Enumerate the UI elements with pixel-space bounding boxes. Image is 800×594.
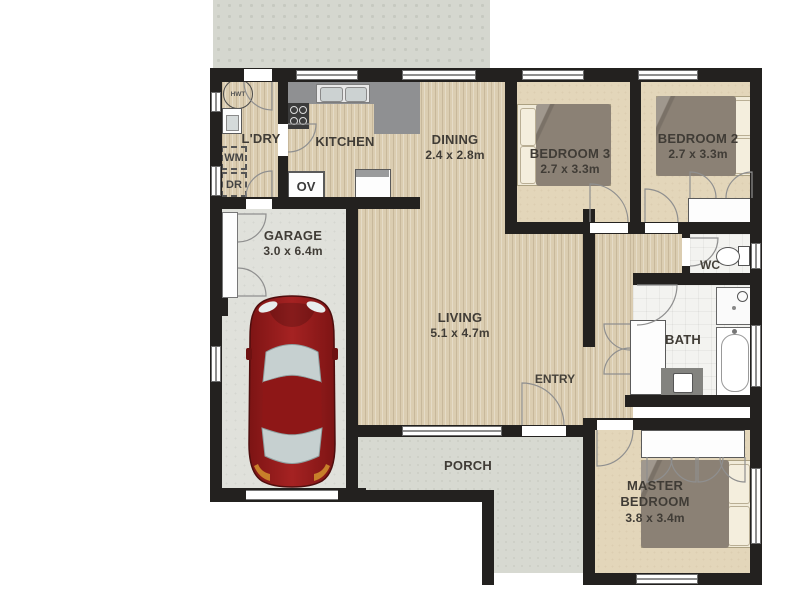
oven-label: OV (297, 179, 316, 194)
living-name: LIVING (402, 310, 518, 326)
dr-label: DR (226, 179, 242, 191)
vanity-basin (673, 373, 693, 393)
window-bedroom2 (638, 70, 698, 80)
room-label-living: LIVING 5.1 x 4.7m (402, 310, 518, 341)
pillow (520, 108, 536, 146)
room-label-master-bedroom: MASTER BEDROOM 3.8 x 3.4m (602, 478, 708, 526)
window-garage (211, 346, 221, 382)
shower-drain (732, 306, 736, 310)
opening-laundry-entry (244, 69, 272, 81)
master-dims: 3.8 x 3.4m (602, 511, 708, 526)
dining-dims: 2.4 x 2.8m (405, 148, 505, 163)
wardrobe-master (641, 430, 745, 458)
washing-machine: WM (221, 146, 247, 170)
entry-name: ENTRY (535, 372, 575, 386)
pillow (728, 464, 750, 504)
window-laundry-2 (211, 166, 221, 196)
bathtub-basin (721, 334, 749, 392)
window-living-south (402, 426, 502, 436)
kitchen-name: KITCHEN (315, 134, 374, 149)
wm-label: WM (224, 152, 244, 164)
sink-bowl-right (345, 87, 367, 102)
floor-hall-alcove (633, 234, 682, 273)
garage-door-opening (246, 490, 338, 500)
bedroom2-dims: 2.7 x 3.3m (646, 147, 750, 162)
garage-storage-cupboard (222, 212, 238, 298)
window-dining (402, 70, 476, 80)
hot-water-tank: HWT (223, 79, 253, 109)
window-laundry-1 (211, 92, 221, 112)
bedroom3-dims: 2.7 x 3.3m (518, 162, 622, 177)
burner (299, 106, 307, 114)
burner (290, 106, 298, 114)
wall-garage-east (346, 209, 358, 502)
window-master-south (636, 574, 698, 584)
opening-wc-door (682, 238, 690, 266)
window-wc (751, 243, 761, 269)
wall-bedroom3-bedroom2 (630, 82, 641, 234)
room-label-garage: GARAGE 3.0 x 6.4m (240, 228, 346, 259)
patio-slab (213, 0, 490, 68)
opening-laundry-garage (246, 199, 272, 209)
garage-name: GARAGE (240, 228, 346, 244)
shower (716, 287, 752, 325)
wall-exterior-west (210, 68, 222, 502)
sink-bowl-left (320, 87, 343, 102)
laundry-tub-bowl (226, 115, 239, 131)
room-label-dining: DINING 2.4 x 2.8m (405, 132, 505, 163)
bathtub (716, 327, 754, 397)
laundry-name: L'DRY (242, 131, 281, 146)
wall-porch-step (482, 490, 494, 585)
opening-entry-door (522, 426, 566, 436)
wall-master-west (583, 418, 595, 585)
room-label-kitchen: KITCHEN (300, 134, 390, 150)
opening-master-door (597, 420, 633, 430)
floor-porch-lower (494, 490, 583, 573)
window-bath (751, 325, 761, 387)
bath-name: BATH (665, 332, 701, 347)
wall-kitchen-south (288, 197, 420, 209)
room-label-wc: WC (692, 258, 728, 272)
room-label-bedroom3: BEDROOM 3 2.7 x 3.3m (518, 146, 622, 177)
burner (290, 117, 298, 125)
bathtub-tap (732, 329, 737, 334)
wall-bedrooms-south (505, 222, 762, 234)
wall-bath-south (625, 395, 762, 407)
window-master-east (751, 468, 761, 544)
room-label-bath: BATH (655, 332, 711, 348)
wall-dining-bedroom3 (505, 82, 517, 234)
porch-name: PORCH (444, 458, 492, 473)
shower-head-icon (737, 291, 748, 302)
bathroom-vanity (661, 368, 703, 396)
opening-bedroom2-door (645, 223, 678, 233)
room-label-entry: ENTRY (520, 372, 590, 386)
window-kitchen (296, 70, 358, 80)
floor-plan: OV HWT WM DR (0, 0, 800, 594)
opening-bedroom3-door (590, 223, 628, 233)
room-label-bedroom2: BEDROOM 2 2.7 x 3.3m (646, 131, 750, 162)
floor-hall (595, 234, 633, 418)
wall-wc-bath (633, 273, 762, 285)
dryer: DR (221, 172, 247, 197)
wc-name: WC (700, 258, 720, 272)
fridge-top (356, 170, 389, 177)
burner (299, 117, 307, 125)
garage-dims: 3.0 x 6.4m (240, 244, 346, 259)
wall-porch-south (346, 490, 494, 502)
master-name: MASTER BEDROOM (602, 478, 708, 511)
room-label-porch: PORCH (428, 458, 508, 474)
stove-cooktop (287, 103, 309, 129)
kitchen-sink (316, 84, 370, 103)
living-dims: 5.1 x 4.7m (402, 326, 518, 341)
bedroom2-name: BEDROOM 2 (646, 131, 750, 147)
dining-name: DINING (405, 132, 505, 148)
bedroom3-name: BEDROOM 3 (518, 146, 622, 162)
kitchen-counter-side (374, 104, 420, 134)
pillow (728, 506, 750, 546)
room-label-laundry: L'DRY (238, 131, 284, 147)
floor-entry-passage (583, 347, 595, 425)
wardrobe-bedroom2 (688, 198, 752, 224)
window-bedroom3 (522, 70, 584, 80)
hwt-label: HWT (231, 91, 246, 98)
